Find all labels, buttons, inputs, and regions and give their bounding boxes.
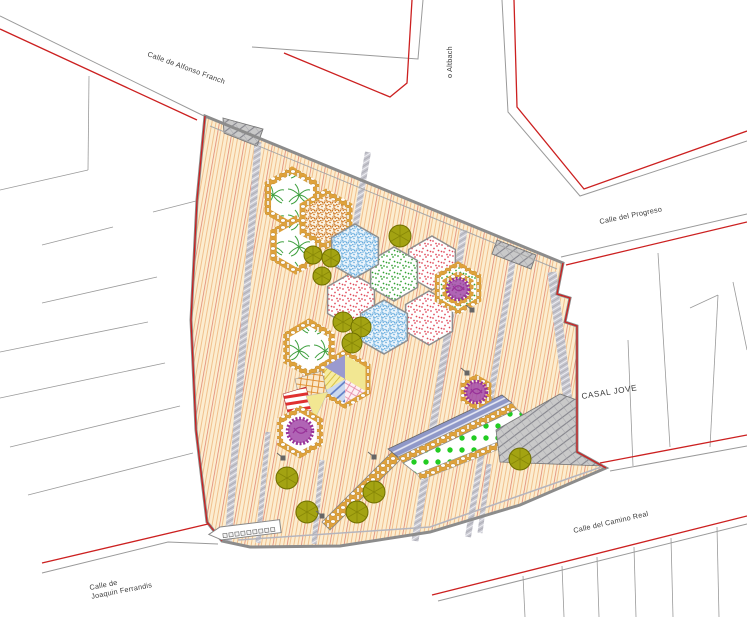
casal-bottom-red	[600, 435, 747, 463]
label-casal-jove: CASAL JOVE	[581, 383, 638, 401]
tree-olive	[322, 249, 340, 267]
label-calle-joaquin-ferrandis: Calle de Joaquin Ferrandis	[89, 571, 153, 600]
casal-bottom-gray	[610, 446, 747, 471]
label-calle-camino-real: Calle del Camino Real	[572, 509, 649, 535]
casal-top-gray	[561, 214, 747, 257]
label-calle-alfonso-franch: Calle de Alfonso Franch	[146, 49, 226, 86]
tree-olive	[304, 246, 322, 264]
tree-olive	[342, 333, 362, 353]
tree-olive	[363, 481, 385, 503]
west-parcel-lines	[0, 76, 196, 495]
hex-playground-multicolor	[322, 352, 368, 406]
block-ne-gray	[502, 0, 747, 196]
tree-olive	[346, 501, 368, 523]
label-calle-del-progreso: Calle del Progreso	[599, 204, 663, 226]
site-plan-svg: Calle de Alfonso Franch o Altbach Calle …	[0, 0, 747, 617]
casal-top-red	[566, 222, 747, 265]
plaza-area	[191, 116, 606, 547]
tree-olive	[509, 448, 531, 470]
site-plan-canvas: Calle de Alfonso Franch o Altbach Calle …	[0, 0, 747, 617]
street-alfonso-red	[0, 29, 197, 120]
tree-olive	[276, 467, 298, 489]
street-north-corner-gray	[252, 0, 423, 59]
tree-olive	[313, 267, 331, 285]
tree-olive	[333, 312, 353, 332]
tree-olive	[296, 501, 318, 523]
tree-olive	[389, 225, 411, 247]
joaquin-red	[42, 524, 208, 563]
joaquin-gray	[42, 542, 218, 573]
label-altbach-fragment: o Altbach	[445, 46, 454, 78]
camino-south-gray	[438, 524, 747, 601]
street-north-corner-red	[284, 0, 412, 97]
casal-parcel-lines	[628, 253, 747, 466]
block-ne-red	[514, 0, 747, 189]
